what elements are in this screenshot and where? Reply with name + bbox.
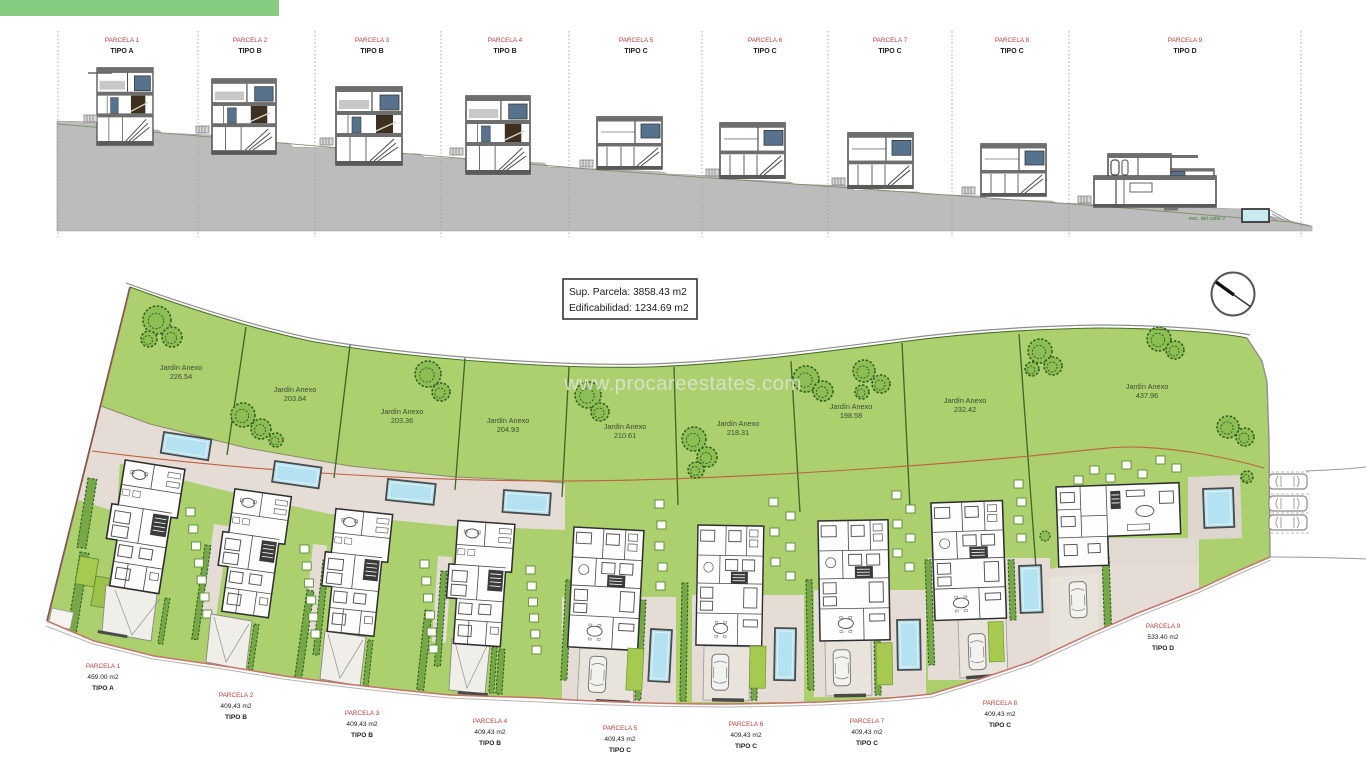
- svg-text:533.40 m2: 533.40 m2: [1147, 634, 1178, 641]
- svg-text:Jardín Anexo: Jardín Anexo: [1126, 382, 1169, 391]
- svg-text:203.84: 203.84: [284, 394, 306, 403]
- svg-text:TIPO C: TIPO C: [856, 740, 878, 747]
- svg-text:esc. del calle v: esc. del calle v: [1189, 216, 1225, 222]
- svg-text:PARCELA 8: PARCELA 8: [983, 700, 1018, 707]
- svg-text:TIPO D: TIPO D: [1173, 48, 1196, 55]
- svg-text:204.93: 204.93: [497, 425, 519, 434]
- svg-text:409,43 m2: 409,43 m2: [851, 729, 882, 736]
- svg-text:210.61: 210.61: [614, 431, 636, 440]
- svg-text:409,43 m2: 409,43 m2: [984, 711, 1015, 718]
- svg-text:PARCELA 2: PARCELA 2: [219, 692, 254, 699]
- svg-text:Jardín Anexo: Jardín Anexo: [717, 419, 760, 428]
- svg-text:203.36: 203.36: [391, 416, 413, 425]
- svg-text:PARCELA 8: PARCELA 8: [995, 37, 1030, 44]
- svg-text:PARCELA 6: PARCELA 6: [748, 37, 783, 44]
- svg-text:TIPO C: TIPO C: [624, 48, 647, 55]
- svg-text:459.00 m2: 459.00 m2: [87, 674, 118, 681]
- svg-text:TIPO A: TIPO A: [110, 48, 133, 55]
- svg-text:Jardín Anexo: Jardín Anexo: [604, 422, 647, 431]
- svg-text:PARCELA 2: PARCELA 2: [233, 37, 268, 44]
- svg-text:198.58: 198.58: [840, 411, 862, 420]
- svg-text:PARCELA 9: PARCELA 9: [1168, 37, 1203, 44]
- svg-text:Sup. Parcela: 3858.43 m2: Sup. Parcela: 3858.43 m2: [569, 287, 687, 298]
- svg-text:Jardín Anexo: Jardín Anexo: [274, 385, 317, 394]
- svg-text:PARCELA 4: PARCELA 4: [488, 37, 523, 44]
- svg-text:Jardín Anexo: Jardín Anexo: [381, 407, 424, 416]
- svg-text:218.31: 218.31: [727, 428, 749, 437]
- svg-text:PARCELA 1: PARCELA 1: [86, 663, 121, 670]
- svg-text:409,43 m2: 409,43 m2: [220, 703, 251, 710]
- svg-text:PARCELA 3: PARCELA 3: [345, 710, 380, 717]
- svg-text:232.42: 232.42: [954, 405, 976, 414]
- svg-text:TIPO B: TIPO B: [238, 48, 261, 55]
- svg-text:PARCELA 3: PARCELA 3: [355, 37, 390, 44]
- svg-text:PARCELA 5: PARCELA 5: [603, 725, 638, 732]
- svg-text:437.96: 437.96: [1136, 391, 1158, 400]
- svg-text:TIPO C: TIPO C: [1000, 48, 1023, 55]
- svg-text:Jardín Anexo: Jardín Anexo: [160, 363, 203, 372]
- svg-text:409,43 m2: 409,43 m2: [346, 721, 377, 728]
- svg-text:Jardín Anexo: Jardín Anexo: [944, 396, 987, 405]
- svg-text:TIPO B: TIPO B: [479, 740, 501, 747]
- svg-text:PARCELA 5: PARCELA 5: [619, 37, 654, 44]
- svg-text:TIPO C: TIPO C: [878, 48, 901, 55]
- svg-text:TIPO C: TIPO C: [989, 722, 1011, 729]
- svg-text:TIPO C: TIPO C: [735, 743, 757, 750]
- svg-text:TIPO C: TIPO C: [609, 747, 631, 754]
- svg-text:409,43 m2: 409,43 m2: [730, 732, 761, 739]
- svg-text:409,43 m2: 409,43 m2: [604, 736, 635, 743]
- svg-text:PARCELA 9: PARCELA 9: [1146, 623, 1181, 630]
- svg-text:TIPO B: TIPO B: [225, 714, 247, 721]
- svg-text:TIPO B: TIPO B: [360, 48, 383, 55]
- svg-text:www.procareestates.com: www.procareestates.com: [563, 372, 802, 395]
- svg-text:TIPO B: TIPO B: [493, 48, 516, 55]
- svg-text:PARCELA 1: PARCELA 1: [105, 37, 140, 44]
- svg-text:409,43 m2: 409,43 m2: [474, 729, 505, 736]
- svg-text:Jardín Anexo: Jardín Anexo: [830, 402, 873, 411]
- svg-text:TIPO C: TIPO C: [753, 48, 776, 55]
- svg-text:Jardín Anexo: Jardín Anexo: [487, 416, 530, 425]
- svg-text:PARCELA 7: PARCELA 7: [850, 718, 885, 725]
- svg-text:PARCELA 6: PARCELA 6: [729, 721, 764, 728]
- svg-text:TIPO B: TIPO B: [351, 732, 373, 739]
- svg-text:PARCELA 7: PARCELA 7: [873, 37, 908, 44]
- svg-text:TIPO A: TIPO A: [92, 685, 114, 692]
- svg-text:TIPO D: TIPO D: [1152, 645, 1174, 652]
- svg-text:226.54: 226.54: [170, 372, 192, 381]
- svg-text:PARCELA 4: PARCELA 4: [473, 718, 508, 725]
- svg-text:Edificabilidad: 1234.69 m2: Edificabilidad: 1234.69 m2: [569, 303, 689, 314]
